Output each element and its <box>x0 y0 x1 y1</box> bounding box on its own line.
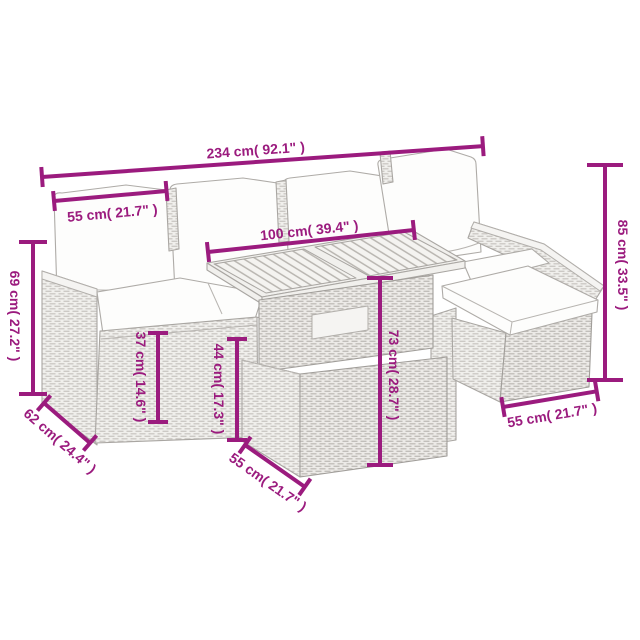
dimension-diagram: 234 cm( 92.1" ) 55 cm( 21.7" ) 100 cm( 3… <box>0 0 640 640</box>
sofa-base <box>95 317 258 443</box>
table-base-front-face <box>300 357 447 477</box>
dimension-label-table-height: 73 cm( 28.7" ) <box>386 330 402 421</box>
footstool-base-left-face <box>452 318 506 402</box>
dimension-label-seat-height: 37 cm( 14.6" ) <box>133 332 149 423</box>
dimension-label-back-height: 85 cm( 33.5" ) <box>615 220 631 311</box>
dimension-label-base-height: 44 cm( 17.3" ) <box>211 344 227 435</box>
dimension-label-arm-height: 69 cm( 27.2" ) <box>7 271 23 362</box>
diagram-canvas: 234 cm( 92.1" ) 55 cm( 21.7" ) 100 cm( 3… <box>0 0 640 640</box>
left-armrest <box>42 271 97 445</box>
dimension-back-height: 85 cm( 33.5" ) <box>587 165 631 380</box>
dimension-arm-height: 69 cm( 27.2" ) <box>7 242 47 394</box>
